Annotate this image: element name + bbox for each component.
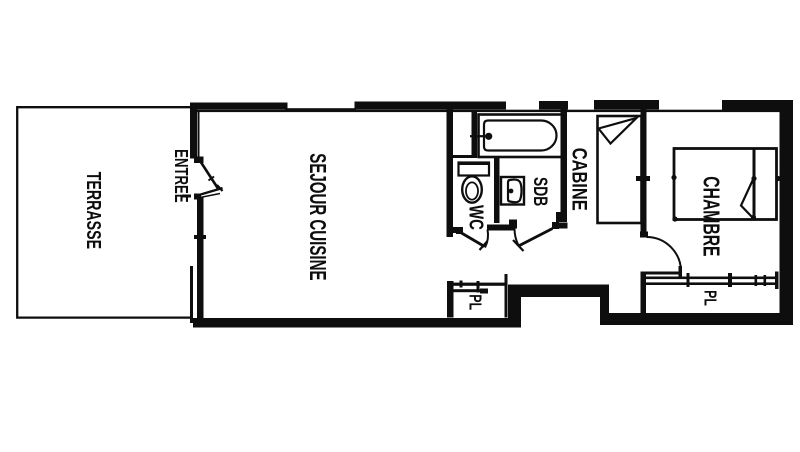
svg-text:PL: PL bbox=[465, 294, 485, 310]
svg-text:CABINE: CABINE bbox=[568, 148, 591, 211]
svg-text:CHAMBRE: CHAMBRE bbox=[697, 176, 723, 256]
svg-text:ENTREE: ENTREE bbox=[171, 149, 191, 202]
svg-text:SDB: SDB bbox=[530, 177, 552, 206]
svg-text:PL: PL bbox=[700, 290, 720, 306]
svg-text:WC: WC bbox=[465, 205, 488, 230]
svg-text:SEJOUR CUISINE: SEJOUR CUISINE bbox=[304, 153, 330, 280]
svg-text:TERRASSE: TERRASSE bbox=[82, 172, 105, 249]
